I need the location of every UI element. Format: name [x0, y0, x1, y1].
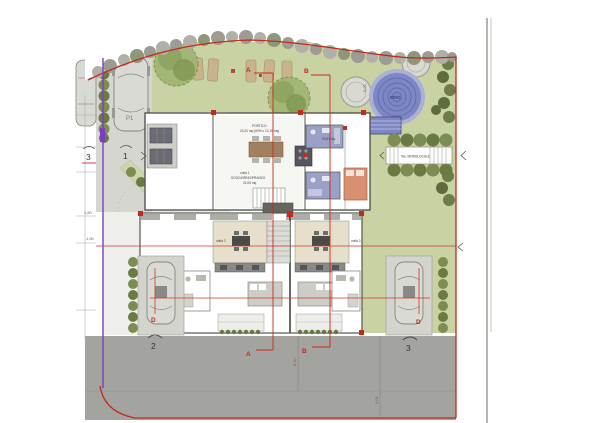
unit1-label: unità 1 [240, 171, 250, 175]
dim-road-2: 5,01 [374, 395, 379, 404]
pool-steps [368, 117, 401, 134]
section-a-bottom: A [246, 351, 251, 358]
section-b-top: B [304, 68, 309, 75]
street-curb-right [487, 18, 491, 423]
portico-label: PORTICO [252, 124, 267, 128]
dining-table-upper [249, 136, 283, 163]
dim-150: 1,50 [86, 236, 95, 241]
dim-180: 1,80 [84, 210, 93, 215]
parking-label: P1 [126, 116, 134, 122]
dim-road-1: 8,00 [292, 357, 297, 366]
site-plan-drawing: P1 [0, 0, 600, 423]
view-left-3-label: 3 [86, 152, 91, 162]
section-d-left: D [151, 317, 156, 324]
walkway-label: Tav. MONOLOCALE [401, 155, 430, 159]
walkway-arrow-right-icon [461, 151, 466, 160]
chevron-left-icon [458, 243, 463, 251]
driveway-right [386, 256, 432, 335]
left-measure-lines [76, 95, 96, 340]
boundary-purple-marker [100, 128, 105, 142]
bed-unit3 [298, 282, 332, 306]
right-area-label: 20,81 mq [322, 137, 336, 141]
bed-unit2 [248, 282, 282, 306]
car-driveway-left [147, 262, 175, 324]
view-left-1-label: 1 [123, 151, 128, 161]
kitchen-counter-unit3 [295, 263, 345, 272]
view-bottom-2-label: 2 [151, 341, 156, 351]
stairs-center [267, 221, 290, 263]
pool-label: IDRO [390, 95, 401, 100]
unit3-label: unità 3 [351, 239, 361, 243]
view-marker-left-3: 3 [82, 147, 96, 164]
dim-pool: 5,00 [362, 83, 367, 92]
bathroom-unit2 [180, 271, 210, 311]
section-d-right: D [416, 319, 421, 326]
upper-building: PORTICO 20,20 mq (60% v 12,19 mq) unità … [145, 110, 370, 213]
kitchen-counter-unit2 [215, 263, 265, 272]
driveway-left [138, 256, 184, 335]
section-a-top: A [246, 67, 251, 74]
bed-upper [344, 168, 367, 200]
site-plan-viewer: totale 219,54 mq. [0, 0, 600, 423]
road [85, 336, 456, 420]
unit1-area: 24,05 mq [243, 181, 257, 185]
unit2-label: unità 2 [216, 239, 226, 243]
unit1-room: SOGGIORNO/PRANZO [231, 176, 266, 180]
section-b-bottom: B [302, 348, 307, 355]
bathroom-unit3 [332, 271, 360, 311]
bathroom-upper-2 [306, 172, 340, 199]
view-bottom-3-label: 3 [406, 343, 411, 353]
lower-top-wall [141, 214, 361, 220]
